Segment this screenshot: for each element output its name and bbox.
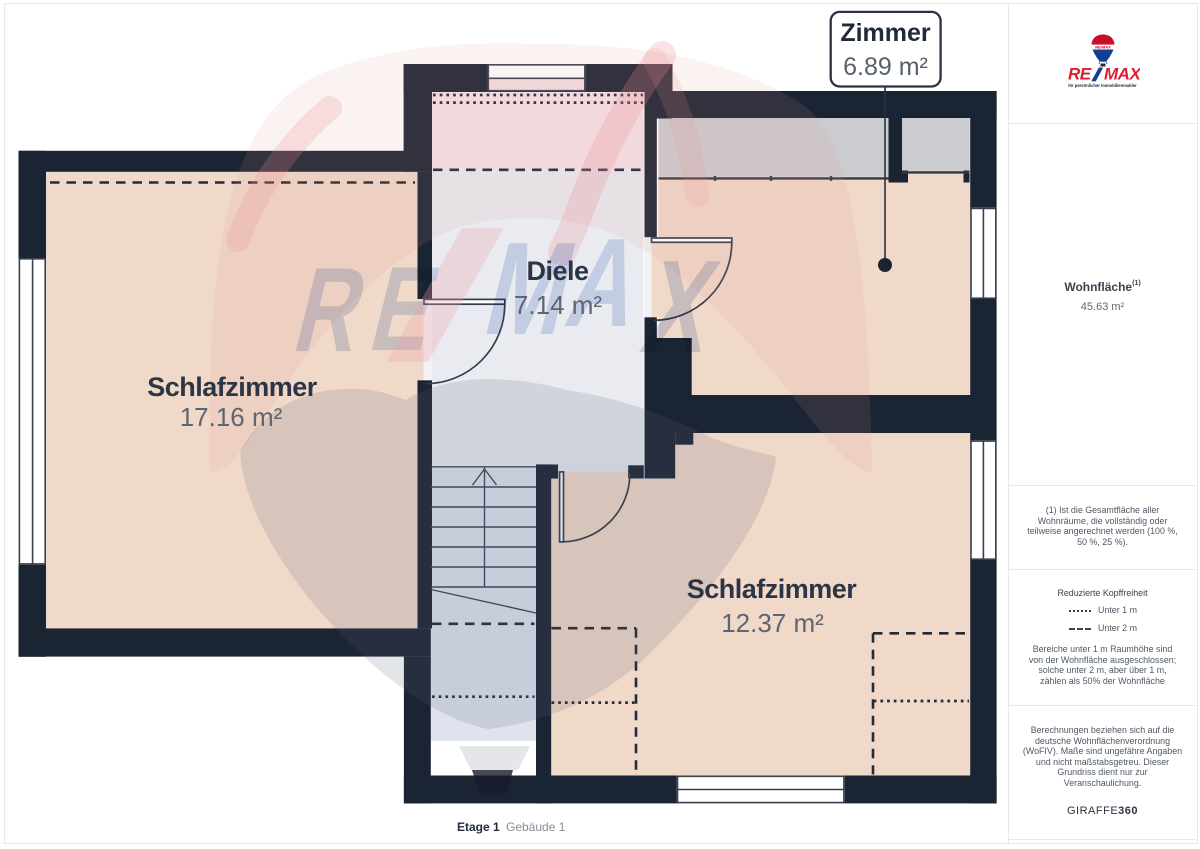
- svg-text:RE/MAX: RE/MAX: [1095, 45, 1111, 50]
- svg-text:12.37 m²: 12.37 m²: [721, 608, 824, 638]
- svg-text:Schlafzimmer: Schlafzimmer: [687, 574, 858, 604]
- svg-text:Zimmer: Zimmer: [840, 19, 931, 47]
- svg-text:MAX: MAX: [1104, 66, 1140, 83]
- svg-text:RE: RE: [1068, 66, 1092, 83]
- svg-text:Diele: Diele: [526, 256, 589, 286]
- svg-text:Schlafzimmer: Schlafzimmer: [147, 372, 318, 402]
- svg-text:6.89 m²: 6.89 m²: [843, 53, 928, 81]
- svg-text:17.16 m²: 17.16 m²: [180, 402, 283, 432]
- svg-text:Etage 1: Etage 1: [457, 820, 500, 834]
- svg-text:7.14 m²: 7.14 m²: [514, 290, 602, 320]
- svg-text:Gebäude 1: Gebäude 1: [506, 820, 566, 834]
